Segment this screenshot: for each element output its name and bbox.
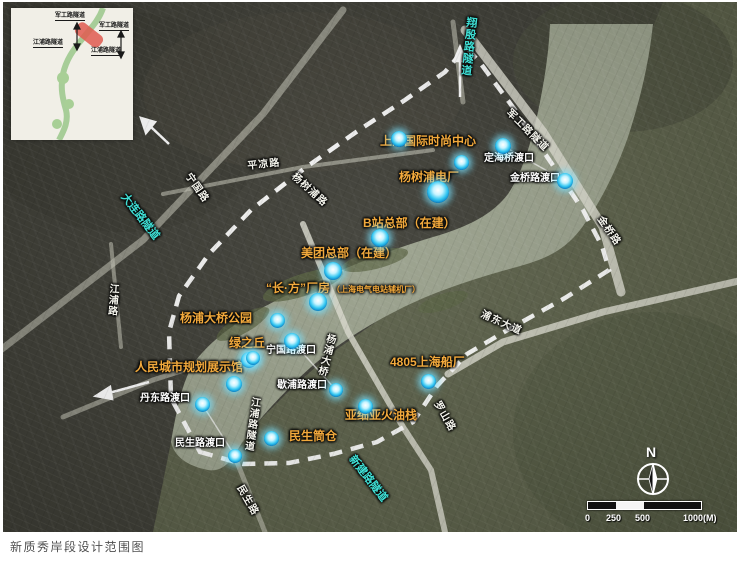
label-green-hill: 绿之丘 — [229, 337, 265, 350]
label-4805-shanghai-shipyard: 4805上海船厂 — [390, 356, 465, 369]
label-jiangpu-road: 江浦路 — [105, 283, 118, 317]
poi-marker — [371, 229, 389, 247]
label-luoshan-road: 罗山路 — [431, 400, 457, 434]
scale-tick-0: 0 — [585, 513, 590, 523]
label-jiangpu-road-tunnel: 江浦路隧道 — [241, 396, 259, 452]
label-yangshupu-power-plant: 杨树浦电厂 — [399, 171, 459, 184]
poi-marker — [270, 313, 285, 328]
label-changfang-factory: “长·方”厂房（上海电气电站辅机厂） — [266, 282, 420, 295]
label-pingliang-road: 平凉路 — [247, 159, 281, 173]
label-dinghaiqiao-ferry: 定海桥渡口 — [484, 154, 534, 165]
poi-marker — [195, 397, 210, 412]
label-ningguo-road: 宁国路 — [182, 172, 210, 205]
poi-marker — [495, 138, 511, 154]
label-xinjian-road-tunnel: 新建路隧道 — [346, 454, 389, 504]
label-pudong-avenue: 浦东大道 — [479, 310, 523, 337]
label-dalian-road-tunnel: 大连路隧道 — [118, 192, 161, 242]
poi-marker — [329, 383, 343, 397]
label-minsheng-silo: 民生筒仓 — [289, 430, 337, 443]
compass-n-letter: N — [646, 444, 656, 460]
label-yangshupu-road: 杨树浦路 — [289, 172, 329, 209]
poi-marker — [391, 131, 407, 147]
label-xiangyin-road-tunnel: 翔殷路隧道 — [459, 16, 477, 77]
label-minsheng-road: 民生路 — [234, 484, 260, 518]
poi-marker — [264, 431, 279, 446]
label-jinqiao-road-ferry: 金桥路渡口 — [510, 174, 560, 185]
poi-marker — [284, 333, 300, 349]
poi-marker — [557, 173, 573, 189]
label-asiatic-petroleum-warehouse: 亚细亚火油栈 — [345, 409, 417, 422]
figure-caption: 新质秀岸段设计范围图 — [10, 538, 145, 555]
label-dandong-road-ferry: 丹东路渡口 — [140, 394, 190, 405]
poi-marker — [427, 181, 449, 203]
scale-bar: 0 250 500 1000(M) — [587, 501, 737, 527]
scale-tick-500: 500 — [635, 513, 650, 523]
label-changfang-factory-suffix: （上海电气电站辅机厂） — [332, 285, 420, 294]
label-bilibili-hq-under-construction: B站总部（在建） — [363, 217, 456, 230]
poi-marker — [358, 399, 373, 414]
label-people-city-planning-exhibition-hall: 人民城市规划展示馆 — [135, 361, 243, 374]
scale-tick-1000m: 1000(M) — [683, 513, 717, 523]
scale-bar-segments — [587, 501, 702, 510]
label-jinqiao-road: 金桥路 — [594, 215, 622, 248]
map-label-layer: 上海国际时尚中心杨树浦电厂B站总部（在建）美团总部（在建）“长·方”厂房（上海电… — [3, 2, 737, 532]
poi-marker — [454, 155, 469, 170]
poi-marker — [309, 293, 327, 311]
satellite-map-canvas[interactable]: 军工路隧道 军工路隧道 江浦路隧道 江浦路隧道 上海国际时尚中心杨树浦电厂B站总… — [3, 2, 737, 532]
label-minsheng-road-ferry: 民生路渡口 — [175, 439, 225, 450]
label-meituan-hq-under-construction: 美团总部（在建） — [301, 247, 397, 260]
compass-north-indicator: N — [633, 444, 677, 500]
scale-tick-250: 250 — [606, 513, 621, 523]
poi-marker — [421, 374, 436, 389]
compass-rose-icon — [633, 459, 673, 499]
label-xiepu-road-ferry: 歇浦路渡口 — [277, 381, 327, 392]
label-yangpu-bridge: 杨浦大桥 — [314, 332, 335, 377]
label-yangpu-bridge-park: 杨浦大桥公园 — [180, 312, 252, 325]
poi-marker — [246, 351, 260, 365]
poi-marker — [228, 449, 242, 463]
poi-marker — [226, 376, 242, 392]
poi-marker — [324, 262, 342, 280]
